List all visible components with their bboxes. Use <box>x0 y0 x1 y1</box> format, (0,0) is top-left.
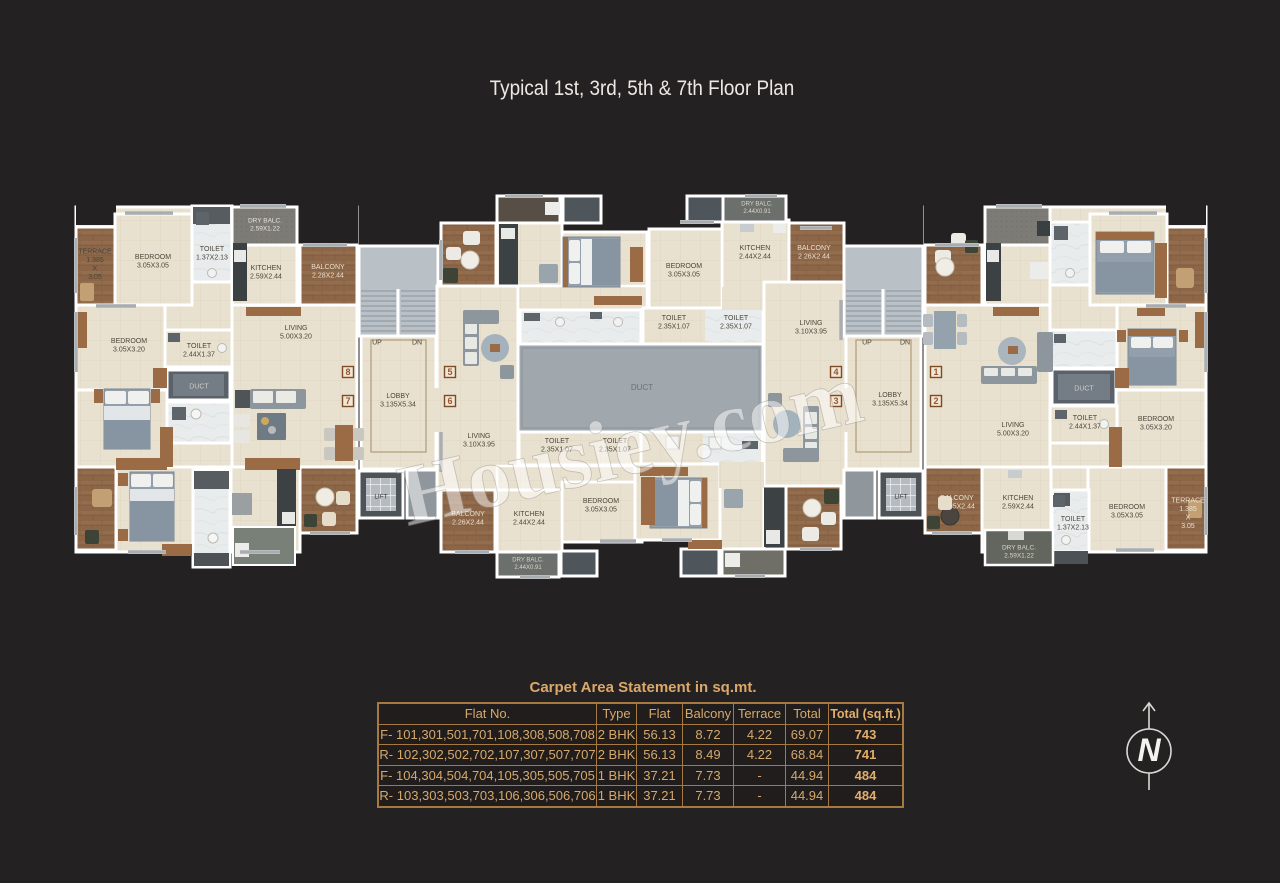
svg-text:BALCONY: BALCONY <box>311 264 345 271</box>
svg-text:2.44X2.44: 2.44X2.44 <box>513 520 545 527</box>
svg-text:5.00X3.20: 5.00X3.20 <box>280 334 312 341</box>
svg-text:2.44X2.44: 2.44X2.44 <box>739 254 771 261</box>
svg-text:TOILET: TOILET <box>724 315 749 322</box>
svg-text:BEDROOM: BEDROOM <box>666 263 702 270</box>
svg-text:X: X <box>93 266 98 273</box>
svg-text:BALCONY: BALCONY <box>940 495 974 502</box>
svg-text:7: 7 <box>345 396 350 406</box>
svg-text:DN: DN <box>900 339 910 346</box>
svg-text:X: X <box>1186 515 1191 522</box>
svg-text:2.59X2.44: 2.59X2.44 <box>250 274 282 281</box>
svg-text:8: 8 <box>345 367 350 377</box>
svg-text:LIFT: LIFT <box>894 493 907 500</box>
svg-text:2.59X1.22: 2.59X1.22 <box>1004 552 1034 559</box>
svg-text:LIVING: LIVING <box>800 320 823 327</box>
svg-text:5.00X3.20: 5.00X3.20 <box>997 431 1029 438</box>
svg-text:3.135X5.34: 3.135X5.34 <box>872 401 908 408</box>
svg-text:KITCHEN: KITCHEN <box>251 265 282 272</box>
svg-text:3.10X3.95: 3.10X3.95 <box>795 329 827 336</box>
svg-text:2.185X2.44: 2.185X2.44 <box>939 504 975 511</box>
svg-text:2 26X2 44: 2 26X2 44 <box>798 254 830 261</box>
svg-text:1.385: 1.385 <box>1179 506 1197 513</box>
svg-text:DUCT: DUCT <box>1074 385 1094 392</box>
svg-text:BEDROOM: BEDROOM <box>111 338 147 345</box>
svg-text:LIVING: LIVING <box>1002 422 1025 429</box>
svg-text:UP: UP <box>862 339 872 346</box>
svg-text:3.05X3.05: 3.05X3.05 <box>1111 513 1143 520</box>
svg-text:2.28X2.44: 2.28X2.44 <box>312 273 344 280</box>
svg-text:LIVING: LIVING <box>285 325 308 332</box>
svg-text:1.37X2.13: 1.37X2.13 <box>196 255 228 262</box>
svg-text:3.05X3.05: 3.05X3.05 <box>668 272 700 279</box>
svg-text:2.59X2.44: 2.59X2.44 <box>1002 504 1034 511</box>
svg-text:3.05: 3.05 <box>88 274 102 281</box>
svg-text:2.59X1.22: 2.59X1.22 <box>250 225 280 232</box>
svg-text:N: N <box>1137 732 1161 768</box>
svg-text:DN: DN <box>412 339 422 346</box>
svg-text:3.135X5.34: 3.135X5.34 <box>380 402 416 409</box>
svg-text:DRY BALC.: DRY BALC. <box>512 557 544 563</box>
svg-text:1: 1 <box>933 367 938 377</box>
svg-text:DRY BALC.: DRY BALC. <box>741 201 773 207</box>
svg-text:3.05: 3.05 <box>1181 523 1195 530</box>
svg-text:TOILET: TOILET <box>662 315 687 322</box>
svg-text:TOILET: TOILET <box>1061 516 1086 523</box>
svg-text:3.05X3.20: 3.05X3.20 <box>1140 425 1172 432</box>
svg-text:5: 5 <box>447 367 452 377</box>
svg-text:TERRACE: TERRACE <box>78 249 112 256</box>
svg-text:TOILET: TOILET <box>200 246 225 253</box>
svg-text:DRY BALC.: DRY BALC. <box>1002 544 1036 551</box>
svg-text:2.44X0.91: 2.44X0.91 <box>743 209 771 215</box>
svg-text:BALCONY: BALCONY <box>797 245 831 252</box>
svg-text:2: 2 <box>933 396 938 406</box>
svg-text:3.05X3.05: 3.05X3.05 <box>137 263 169 270</box>
svg-text:DUCT: DUCT <box>189 383 209 390</box>
svg-text:KITCHEN: KITCHEN <box>1003 495 1034 502</box>
svg-text:1.385: 1.385 <box>86 257 104 264</box>
svg-text:2.44X1.37: 2.44X1.37 <box>1069 424 1101 431</box>
svg-text:3.05X3.20: 3.05X3.20 <box>113 347 145 354</box>
svg-text:LOBBY: LOBBY <box>386 393 410 400</box>
svg-text:KITCHEN: KITCHEN <box>740 245 771 252</box>
svg-text:3.05X3.05: 3.05X3.05 <box>585 507 617 514</box>
svg-text:UP: UP <box>372 339 382 346</box>
svg-text:BEDROOM: BEDROOM <box>1109 504 1145 511</box>
svg-text:TOILET: TOILET <box>187 343 212 350</box>
svg-text:6: 6 <box>447 396 452 406</box>
svg-text:2.44X0.91: 2.44X0.91 <box>514 565 542 571</box>
svg-text:BEDROOM: BEDROOM <box>1138 416 1174 423</box>
svg-text:BEDROOM: BEDROOM <box>135 254 171 261</box>
svg-text:2.35X1.07: 2.35X1.07 <box>720 324 752 331</box>
svg-text:1.37X2.13: 1.37X2.13 <box>1057 525 1089 532</box>
svg-text:TERRACE: TERRACE <box>1171 498 1205 505</box>
svg-text:2.44X1.37: 2.44X1.37 <box>183 352 215 359</box>
svg-text:2.35X1.07: 2.35X1.07 <box>658 324 690 331</box>
svg-text:DRY BALC.: DRY BALC. <box>248 217 282 224</box>
svg-text:TOILET: TOILET <box>1073 415 1098 422</box>
svg-text:LOBBY: LOBBY <box>878 392 902 399</box>
svg-text:LIFT: LIFT <box>374 493 387 500</box>
